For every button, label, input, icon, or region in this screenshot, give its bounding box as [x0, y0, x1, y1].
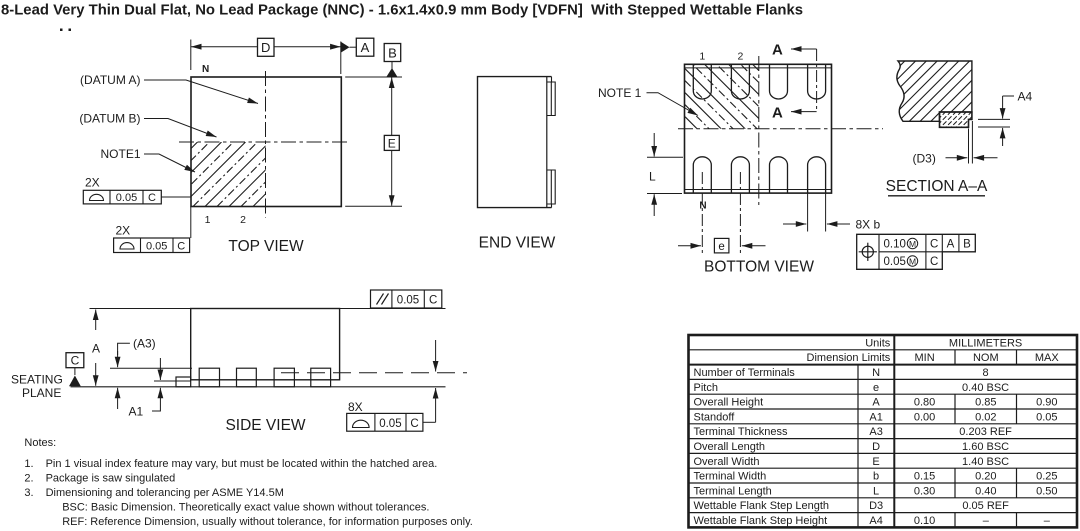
svg-text:NOM: NOM — [973, 352, 999, 364]
svg-text:0.90: 0.90 — [1036, 397, 1057, 409]
svg-text:–: – — [1044, 515, 1051, 527]
svg-text:1: 1 — [205, 214, 211, 226]
svg-text:0.20: 0.20 — [975, 471, 996, 483]
svg-text:1.60 BSC: 1.60 BSC — [962, 441, 1009, 453]
svg-text:Overall Length: Overall Length — [694, 441, 766, 453]
svg-text:0.05: 0.05 — [146, 240, 167, 252]
svg-text:e: e — [718, 241, 724, 253]
svg-text:0.25: 0.25 — [1036, 471, 1057, 483]
svg-text:Dimension Limits: Dimension Limits — [807, 352, 891, 364]
svg-text:PLANE: PLANE — [22, 386, 61, 400]
svg-text:C: C — [71, 354, 80, 368]
svg-text:0.05: 0.05 — [1036, 411, 1057, 423]
svg-text:0.05: 0.05 — [116, 192, 137, 204]
svg-text:0.02: 0.02 — [975, 411, 996, 423]
svg-text:Package is saw singulated: Package is saw singulated — [46, 473, 176, 485]
svg-text:MAX: MAX — [1035, 352, 1060, 364]
svg-text:A: A — [772, 42, 783, 59]
svg-text:b: b — [873, 471, 879, 483]
svg-text:0.05: 0.05 — [379, 418, 401, 430]
svg-text:SECTION A–A: SECTION A–A — [886, 178, 988, 195]
svg-text:BSC: Basic Dimension. Theoreti: BSC: Basic Dimension. Theoretically exac… — [62, 502, 429, 514]
svg-text:A: A — [772, 104, 783, 121]
svg-text:–: – — [983, 515, 990, 527]
svg-text:B: B — [963, 239, 971, 251]
svg-text:E: E — [872, 456, 879, 468]
svg-text:Wettable Flank Step Length: Wettable Flank Step Length — [694, 500, 830, 512]
svg-text:Dimensioning and tolerancing p: Dimensioning and tolerancing per ASME Y1… — [46, 487, 284, 499]
svg-text:A: A — [872, 397, 880, 409]
svg-text:N: N — [699, 201, 706, 212]
svg-text:Pin 1 visual index feature may: Pin 1 visual index feature may vary, but… — [46, 458, 438, 470]
svg-text:MIN: MIN — [915, 352, 935, 364]
svg-text:0.80: 0.80 — [914, 397, 935, 409]
svg-text:C: C — [148, 192, 156, 204]
svg-text:END VIEW: END VIEW — [479, 235, 556, 252]
svg-text:REF: Reference Dimension, usua: REF: Reference Dimension, usually withou… — [62, 516, 473, 528]
svg-text:0.85: 0.85 — [975, 397, 996, 409]
svg-text:N: N — [872, 367, 880, 379]
svg-text:C: C — [410, 418, 418, 430]
svg-text:0.00: 0.00 — [914, 411, 935, 423]
svg-text:3.: 3. — [24, 487, 33, 499]
svg-text:0.10: 0.10 — [884, 239, 906, 251]
svg-text:0.50: 0.50 — [1036, 485, 1057, 497]
svg-text:0.40: 0.40 — [975, 485, 996, 497]
svg-text:L: L — [649, 170, 656, 184]
svg-text:C: C — [177, 240, 185, 252]
svg-text:A: A — [361, 40, 370, 55]
svg-text:2X: 2X — [85, 176, 100, 190]
svg-text:0.10: 0.10 — [914, 515, 935, 527]
svg-text:2.: 2. — [24, 473, 33, 485]
svg-text:SEATING: SEATING — [11, 373, 63, 387]
svg-text:Pitch: Pitch — [694, 382, 718, 394]
svg-text:A: A — [92, 342, 100, 356]
svg-text:0.05: 0.05 — [397, 294, 419, 306]
svg-text:0.05: 0.05 — [884, 256, 906, 268]
svg-text:SIDE VIEW: SIDE VIEW — [225, 417, 305, 434]
svg-text:A4: A4 — [1018, 90, 1033, 104]
svg-text:Notes:: Notes: — [24, 437, 56, 449]
svg-text:8-Lead Very Thin Dual Flat, No: 8-Lead Very Thin Dual Flat, No Lead Pack… — [1, 2, 803, 19]
svg-text:Terminal Thickness: Terminal Thickness — [694, 426, 788, 438]
svg-text:TOP VIEW: TOP VIEW — [228, 238, 304, 255]
svg-text:0.203 REF: 0.203 REF — [959, 426, 1012, 438]
svg-text:(DATUM A): (DATUM A) — [80, 73, 140, 87]
svg-text:BOTTOM VIEW: BOTTOM VIEW — [704, 259, 814, 276]
svg-text:2: 2 — [737, 51, 743, 63]
svg-text:Units: Units — [865, 337, 891, 349]
svg-text:D3: D3 — [869, 500, 883, 512]
svg-text:0.15: 0.15 — [914, 471, 935, 483]
svg-text:C: C — [429, 294, 437, 306]
svg-text:A4: A4 — [869, 515, 882, 527]
svg-text:1: 1 — [699, 51, 705, 63]
svg-text:M: M — [909, 257, 916, 267]
svg-text:N: N — [202, 64, 209, 75]
svg-text:2X: 2X — [116, 224, 131, 238]
svg-text:E: E — [388, 136, 396, 150]
svg-text:(D3): (D3) — [913, 152, 936, 166]
svg-text:A3: A3 — [869, 426, 882, 438]
svg-text:0.05 REF: 0.05 REF — [962, 500, 1009, 512]
svg-text:B: B — [388, 45, 397, 60]
svg-text:L: L — [873, 485, 879, 497]
svg-text:0.40 BSC: 0.40 BSC — [962, 382, 1009, 394]
svg-text:Overall Height: Overall Height — [694, 397, 764, 409]
svg-text:Terminal Length: Terminal Length — [694, 485, 772, 497]
svg-text:8: 8 — [983, 367, 989, 379]
svg-text:(A3): (A3) — [133, 337, 156, 351]
svg-text:8X b: 8X b — [856, 217, 881, 231]
svg-text:A: A — [947, 239, 955, 251]
svg-text:D: D — [872, 441, 880, 453]
svg-text:Overall Width: Overall Width — [694, 456, 760, 468]
svg-text:0.30: 0.30 — [914, 485, 935, 497]
svg-text:NOTE 1: NOTE 1 — [598, 86, 642, 100]
svg-text:1.: 1. — [24, 458, 33, 470]
svg-text:NOTE1: NOTE1 — [100, 147, 140, 161]
svg-text:A1: A1 — [869, 411, 882, 423]
svg-text:C: C — [930, 239, 938, 251]
svg-text:e: e — [873, 382, 879, 394]
svg-text:M: M — [909, 239, 916, 249]
svg-text:Wettable Flank Step Height: Wettable Flank Step Height — [694, 515, 828, 527]
svg-text:D: D — [261, 40, 270, 55]
svg-text:Standoff: Standoff — [694, 411, 736, 423]
svg-text:8X: 8X — [348, 400, 363, 414]
svg-text:(DATUM B): (DATUM B) — [79, 112, 140, 126]
svg-text:MILLIMETERS: MILLIMETERS — [949, 337, 1022, 349]
svg-text:Number of Terminals: Number of Terminals — [694, 367, 796, 379]
svg-text:C: C — [930, 256, 938, 268]
svg-text:Terminal Width: Terminal Width — [694, 471, 767, 483]
svg-text:1.40 BSC: 1.40 BSC — [962, 456, 1009, 468]
svg-text:A1: A1 — [129, 405, 144, 419]
svg-text:2: 2 — [240, 214, 246, 226]
